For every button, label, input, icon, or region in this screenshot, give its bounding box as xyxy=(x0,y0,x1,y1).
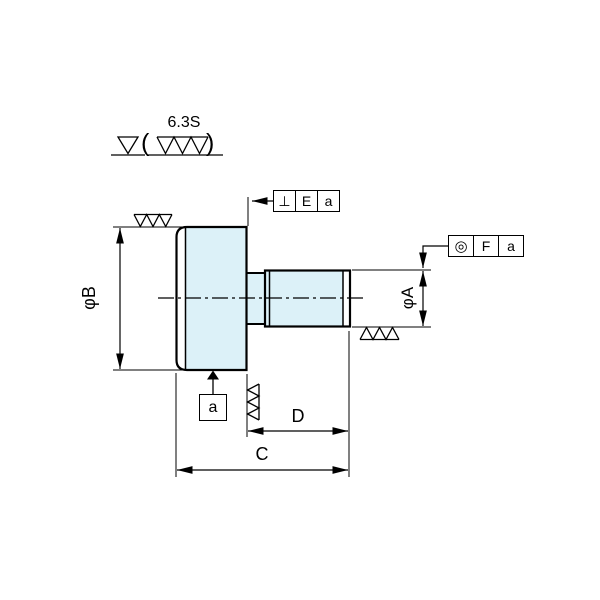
shoulder-face-finish-icon xyxy=(248,384,260,420)
dim-label-diameter-a: φA xyxy=(398,274,416,322)
perpendicularity-tolerance: E xyxy=(295,191,317,211)
concentricity-icon: ◎ xyxy=(449,236,473,256)
dim-label-diameter-b: φB xyxy=(79,273,99,323)
shaft-finish-icon xyxy=(360,328,399,340)
concentricity-leader xyxy=(423,246,448,268)
datum-label: a xyxy=(209,399,218,417)
dim-label-length-d: D xyxy=(278,407,318,425)
concentricity-tolerance: F xyxy=(473,236,498,256)
concentricity-datum-ref: a xyxy=(498,236,523,256)
dimension-lines xyxy=(120,201,448,470)
dim-label-length-c: C xyxy=(242,445,282,463)
perpendicularity-datum-ref: a xyxy=(317,191,339,211)
datum-triangle-icon xyxy=(207,371,219,380)
extension-lines xyxy=(113,197,431,477)
roughness-value: 6.3S xyxy=(160,115,208,131)
roughness-triple-triangle-icon xyxy=(157,137,208,154)
datum-symbol xyxy=(207,371,219,395)
concentricity-frame: ◎ F a xyxy=(448,235,524,257)
perpendicularity-frame: ⊥ E a xyxy=(273,190,340,212)
note-paren-close: ) xyxy=(206,131,214,156)
perpendicularity-icon: ⊥ xyxy=(274,191,295,211)
roughness-triangle-icon xyxy=(118,137,138,154)
note-paren-open: ( xyxy=(141,131,149,156)
engineering-drawing: 6.3S ( ) φB φA D C a ⊥ E a ◎ F a xyxy=(0,0,600,600)
datum-box: a xyxy=(199,394,227,421)
flange-top-finish-icon xyxy=(134,215,172,227)
